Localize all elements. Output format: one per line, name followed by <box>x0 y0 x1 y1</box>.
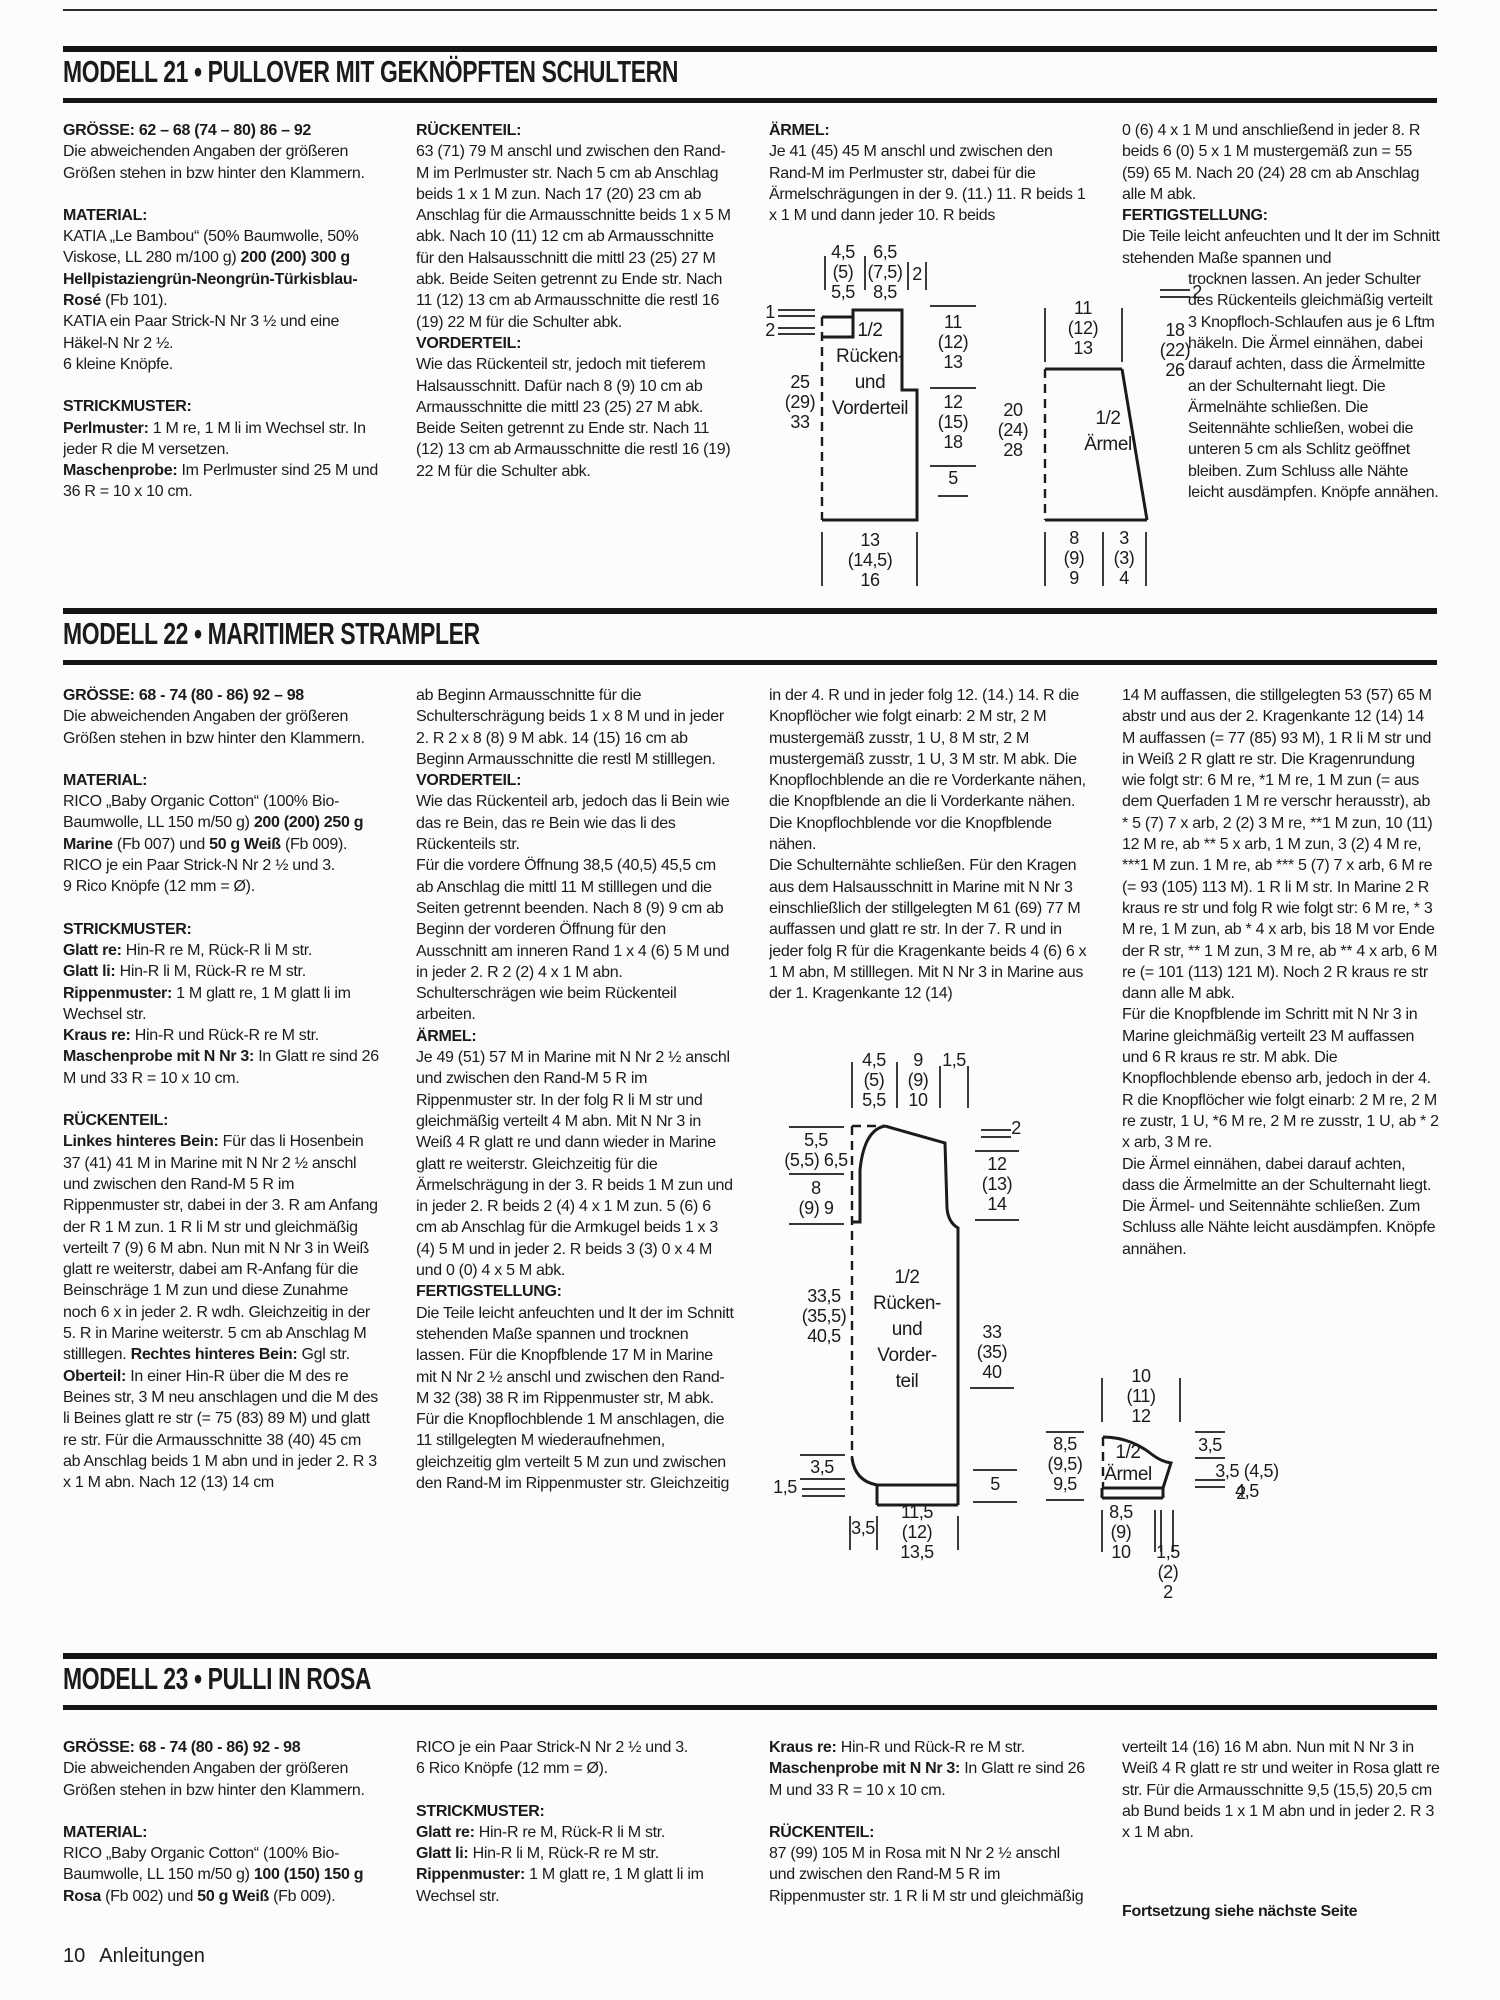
text: Die Teile leicht anfeuchten und lt der i… <box>416 1305 734 1492</box>
text: (Fb 007) und <box>113 836 209 853</box>
bold-text: RÜCKENTEIL: <box>63 1112 168 1129</box>
paragraph: Kraus re: Hin-R und Rück-R re M str. <box>769 1737 1087 1758</box>
text: Hin-R re M, Rück-R li M str. <box>475 1824 665 1841</box>
section-rule <box>63 608 1437 614</box>
paragraph: RÜCKENTEIL: <box>416 120 734 141</box>
bold-text: 50 g Weiß <box>209 836 281 853</box>
bold-text: FERTIGSTELLUNG: <box>416 1283 562 1300</box>
paragraph: Je 41 (45) 45 M anschl und zwischen den … <box>769 141 1087 226</box>
diagram-label: 20 (24) 28 <box>998 400 1028 460</box>
paragraph: MATERIAL: <box>63 205 381 226</box>
paragraph: RÜCKENTEIL: <box>769 1822 1087 1843</box>
paragraph: verteilt 14 (16) 16 M abn. Nun mit N Nr … <box>1122 1737 1440 1843</box>
diagram-label: 4,5 (5) 5,5 <box>862 1050 886 1110</box>
paragraph: Die abweichenden Angaben der größeren Gr… <box>63 706 381 749</box>
text: Hin-R und Rück-R re M str. <box>837 1739 1025 1756</box>
text: Die abweichenden Angaben der größeren Gr… <box>63 1760 365 1798</box>
paragraph: STRICKMUSTER: <box>416 1801 734 1822</box>
diagram-label: 11 (12) 13 <box>1068 298 1098 358</box>
text: KATIA ein Paar Strick-N Nr 3 ½ und eine … <box>63 313 339 351</box>
bold-text: STRICKMUSTER: <box>63 398 192 415</box>
text: Für die vordere Öffnung 38,5 (40,5) 45,5… <box>416 857 729 1023</box>
paragraph: 9 Rico Knöpfe (12 mm = Ø). <box>63 876 381 897</box>
paragraph: GRÖSSE: 68 - 74 (80 - 86) 92 – 98 <box>63 685 381 706</box>
column-m22-1: GRÖSSE: 68 - 74 (80 - 86) 92 – 98Die abw… <box>63 685 381 1647</box>
text: (Fb 002) und <box>101 1888 197 1905</box>
diagram-label: 25 (29) 33 <box>785 372 815 432</box>
bold-text: Maschenprobe: <box>63 462 177 479</box>
bold-text: Oberteil: <box>63 1368 126 1385</box>
paragraph: 6 kleine Knöpfe. <box>63 354 381 375</box>
bold-text: Maschenprobe mit N Nr 3: <box>769 1760 960 1777</box>
paragraph: FERTIGSTELLUNG: <box>1122 205 1440 226</box>
bold-text: GRÖSSE: 62 – 68 (74 – 80) 86 – 92 <box>63 122 311 139</box>
diagram-label: 2 <box>1011 1118 1021 1138</box>
bold-text: Kraus re: <box>63 1027 131 1044</box>
bold-text: RÜCKENTEIL: <box>416 122 521 139</box>
paragraph: STRICKMUSTER: <box>63 396 381 417</box>
page-footer: 10Anleitungen <box>63 1945 205 1968</box>
text: ab Beginn Armausschnitte für die Schulte… <box>416 687 724 768</box>
diagram-label: 1,5 <box>773 1477 797 1497</box>
diagram-label: 33,5 (35,5) 40,5 <box>802 1286 847 1346</box>
paragraph: 87 (99) 105 M in Rosa mit N Nr 2 ½ ansch… <box>769 1843 1087 1907</box>
schematic-diagram-modell21: 4,5 (5) 5,56,5 (7,5) 8,521225 (29) 331/2… <box>760 240 1220 610</box>
paragraph: MATERIAL: <box>63 1822 381 1843</box>
bold-text: 50 g Weiß <box>197 1888 269 1905</box>
paragraph: Rippenmuster: 1 M glatt re, 1 M glatt li… <box>416 1864 734 1907</box>
section-rule <box>63 1705 1437 1710</box>
paragraph: GRÖSSE: 68 - 74 (80 - 86) 92 - 98 <box>63 1737 381 1758</box>
paragraph: ÄRMEL: <box>769 120 1087 141</box>
text: Je 49 (51) 57 M in Marine mit N Nr 2 ½ a… <box>416 1049 733 1279</box>
paragraph: Glatt re: Hin-R re M, Rück-R li M str. <box>416 1822 734 1843</box>
bold-text: Maschenprobe mit N Nr 3: <box>63 1048 254 1065</box>
diagram-label: 3,5 <box>851 1518 875 1538</box>
paragraph: RICO je ein Paar Strick-N Nr 2 ½ und 3. <box>63 855 381 876</box>
diagram-label: 3,5 <box>1198 1435 1222 1455</box>
paragraph: FERTIGSTELLUNG: <box>416 1281 734 1302</box>
text: In einer Hin-R über die M des re Beines … <box>63 1368 378 1491</box>
diagram-label: 18 (22) 26 <box>1160 320 1190 380</box>
paragraph: Oberteil: In einer Hin-R über die M des … <box>63 1366 381 1494</box>
bold-text: ÄRMEL: <box>416 1028 476 1045</box>
paragraph: Die Schulternähte schließen. Für den Kra… <box>769 855 1087 1004</box>
paragraph: trocknen lassen. An jeder Schulter des R… <box>1188 269 1440 503</box>
paragraph: Wie das Rückenteil str, jedoch mit tiefe… <box>416 354 734 482</box>
text: verteilt 14 (16) 16 M abn. Nun mit N Nr … <box>1122 1739 1440 1841</box>
paragraph: Maschenprobe: Im Perlmuster sind 25 M un… <box>63 460 381 503</box>
paragraph: Die Teile leicht anfeuchten und lt der i… <box>416 1303 734 1495</box>
text: (Fb 009). <box>281 836 347 853</box>
paragraph: RICO je ein Paar Strick-N Nr 2 ½ und 3. <box>416 1737 734 1758</box>
column-m21-1: GRÖSSE: 62 – 68 (74 – 80) 86 – 92Die abw… <box>63 120 381 602</box>
text: (Fb 009). <box>269 1888 335 1905</box>
bold-text: Linkes hinteres Bein: <box>63 1133 219 1150</box>
schematic-diagram-modell22: 4,5 (5) 5,59 (9) 101,5212 (13) 1433 (35)… <box>769 1050 1329 1620</box>
bold-text: RÜCKENTEIL: <box>769 1824 874 1841</box>
text: 0 (6) 4 x 1 M und anschließend in jeder … <box>1122 122 1420 203</box>
section-title-modell22: MODELL 22 • MARITIMER STRAMPLER <box>63 616 480 652</box>
bold-text: Rippenmuster: <box>63 985 172 1002</box>
paragraph: 0 (6) 4 x 1 M und anschließend in jeder … <box>1122 120 1440 205</box>
text: Ggl str. <box>297 1346 349 1363</box>
column-m23-1: GRÖSSE: 68 - 74 (80 - 86) 92 - 98Die abw… <box>63 1737 381 1935</box>
section-title-modell21: MODELL 21 • PULLOVER MIT GEKNÖPFTEN SCHU… <box>63 54 678 90</box>
diagram-label: 3,5 (4,5) 4,5 <box>1206 1461 1288 1501</box>
paragraph: Glatt re: Hin-R re M, Rück-R li M str. <box>63 940 381 961</box>
paragraph: ÄRMEL: <box>416 1026 734 1047</box>
diagram-label: 3,5 <box>810 1457 834 1477</box>
bold-text: Glatt re: <box>63 942 122 959</box>
paragraph: Die abweichenden Angaben der größeren Gr… <box>63 1758 381 1801</box>
diagram-label: 8,5 (9,5) 9,5 <box>1047 1434 1082 1494</box>
column-m22-3: in der 4. R und in jeder folg 12. (14.) … <box>769 685 1087 1045</box>
diagram-label: 8 (9) 9 <box>1064 528 1085 588</box>
section-rule <box>63 1653 1437 1659</box>
text: Hin-R re M, Rück-R li M str. <box>122 942 312 959</box>
bold-text: VORDERTEIL: <box>416 335 521 352</box>
bold-text: Glatt li: <box>63 963 115 980</box>
bold-text: VORDERTEIL: <box>416 772 521 789</box>
bold-text: STRICKMUSTER: <box>63 921 192 938</box>
text: Wie das Rückenteil arb, jedoch das li Be… <box>416 793 729 853</box>
text: in der 4. R und in jeder folg 12. (14.) … <box>769 687 1086 853</box>
text: Wie das Rückenteil str, jedoch mit tiefe… <box>416 356 730 479</box>
text: Die Schulternähte schließen. Für den Kra… <box>769 857 1086 1002</box>
paragraph: Je 49 (51) 57 M in Marine mit N Nr 2 ½ a… <box>416 1047 734 1281</box>
paragraph: GRÖSSE: 62 – 68 (74 – 80) 86 – 92 <box>63 120 381 141</box>
diagram-label: 2 <box>765 320 775 340</box>
diagram-label: 12 (15) 18 <box>938 392 968 452</box>
diagram-label: 1/2 Ärmel <box>1084 406 1132 458</box>
paragraph: Glatt li: Hin-R li M, Rück-R re M str. <box>416 1843 734 1864</box>
paragraph: KATIA ein Paar Strick-N Nr 3 ½ und eine … <box>63 311 381 354</box>
column-m22-2: ab Beginn Armausschnitte für die Schulte… <box>416 685 734 1647</box>
diagram-label: 1/2 Rücken- und Vorder- teil <box>873 1265 941 1395</box>
bold-text: ÄRMEL: <box>769 122 829 139</box>
paragraph: VORDERTEIL: <box>416 770 734 791</box>
paragraph: Wie das Rückenteil arb, jedoch das li Be… <box>416 791 734 855</box>
text: Hin-R li M, Rück-R re M str. <box>115 963 305 980</box>
bold-text: FERTIGSTELLUNG: <box>1122 207 1268 224</box>
diagram-label: 2 <box>1236 1483 1246 1503</box>
paragraph: Maschenprobe mit N Nr 3: In Glatt re sin… <box>63 1046 381 1089</box>
diagram-label: 6,5 (7,5) 8,5 <box>867 242 902 302</box>
paragraph: 6 Rico Knöpfe (12 mm = Ø). <box>416 1758 734 1779</box>
text: RICO je ein Paar Strick-N Nr 2 ½ und 3. <box>416 1739 688 1756</box>
text: 14 M auffassen, die stillgelegten 53 (57… <box>1122 687 1437 1002</box>
bold-text: Perlmuster: <box>63 420 149 437</box>
bold-text: Rippenmuster: <box>416 1866 525 1883</box>
text: (Fb 101). <box>101 292 167 309</box>
paragraph: RÜCKENTEIL: <box>63 1110 381 1131</box>
paragraph: in der 4. R und in jeder folg 12. (14.) … <box>769 685 1087 855</box>
column-m23-3: Kraus re: Hin-R und Rück-R re M str.Masc… <box>769 1737 1087 1935</box>
diagram-label: 2 <box>912 264 922 284</box>
schematic-outline <box>760 240 1220 610</box>
bold-text: Fortsetzung siehe nächste Seite <box>1122 1903 1357 1920</box>
diagram-label: 13 (14,5) 16 <box>848 530 893 590</box>
page-top-rule <box>63 9 1437 11</box>
paragraph: MATERIAL: <box>63 770 381 791</box>
magazine-page: MODELL 21 • PULLOVER MIT GEKNÖPFTEN SCHU… <box>0 0 1500 2000</box>
diagram-label: 10 (11) 12 <box>1126 1366 1155 1426</box>
text: 6 kleine Knöpfe. <box>63 356 173 373</box>
column-m21-2: RÜCKENTEIL:63 (71) 79 M anschl und zwisc… <box>416 120 734 602</box>
section-rule <box>63 98 1437 103</box>
bold-text: MATERIAL: <box>63 1824 147 1841</box>
text: Je 41 (45) 45 M anschl und zwischen den … <box>769 143 1085 224</box>
paragraph: Maschenprobe mit N Nr 3: In Glatt re sin… <box>769 1758 1087 1801</box>
diagram-label: 5,5 (5,5) 6,5 <box>784 1130 847 1170</box>
bold-text: MATERIAL: <box>63 772 147 789</box>
text: 6 Rico Knöpfe (12 mm = Ø). <box>416 1760 608 1777</box>
diagram-label: 4,5 (5) 5,5 <box>831 242 855 302</box>
bold-text: STRICKMUSTER: <box>416 1803 545 1820</box>
diagram-label: 12 (13) 14 <box>982 1154 1012 1214</box>
paragraph: Für die vordere Öffnung 38,5 (40,5) 45,5… <box>416 855 734 1025</box>
diagram-label: 5 <box>948 468 958 488</box>
bold-text: Glatt re: <box>416 1824 475 1841</box>
paragraph: KATIA „Le Bambou“ (50% Baumwolle, 50% Vi… <box>63 226 381 311</box>
paragraph: Fortsetzung siehe nächste Seite <box>1122 1901 1440 1922</box>
section-rule <box>63 660 1437 665</box>
text: 63 (71) 79 M anschl und zwischen den Ran… <box>416 143 731 330</box>
footer-label: Anleitungen <box>99 1945 205 1967</box>
text: trocknen lassen. An jeder Schulter des R… <box>1188 271 1438 501</box>
bold-text: GRÖSSE: 68 - 74 (80 - 86) 92 - 98 <box>63 1739 300 1756</box>
paragraph: Die abweichenden Angaben der größeren Gr… <box>63 141 381 184</box>
section-title-modell23: MODELL 23 • PULLI IN ROSA <box>63 1661 371 1697</box>
diagram-label: 3 (3) 4 <box>1114 528 1135 588</box>
bold-text: Kraus re: <box>769 1739 837 1756</box>
footer-page-number: 10 <box>63 1945 85 1967</box>
diagram-label: 33 (35) 40 <box>977 1322 1007 1382</box>
diagram-label: 1,5 (2) 2 <box>1156 1542 1180 1602</box>
text: RICO je ein Paar Strick-N Nr 2 ½ und 3. <box>63 857 335 874</box>
diagram-label: 11 (12) 13 <box>938 312 968 372</box>
diagram-label: 1 <box>765 302 775 322</box>
diagram-label: 1,5 <box>942 1050 966 1070</box>
bold-text: GRÖSSE: 68 - 74 (80 - 86) 92 – 98 <box>63 687 304 704</box>
bold-text: Glatt li: <box>416 1845 468 1862</box>
diagram-label: 11,5 (12) 13,5 <box>900 1502 933 1562</box>
paragraph: Linkes hinteres Bein: Für das li Hosenbe… <box>63 1131 381 1365</box>
paragraph: VORDERTEIL: <box>416 333 734 354</box>
paragraph: Glatt li: Hin-R li M, Rück-R re M str. <box>63 961 381 982</box>
paragraph: RICO „Baby Organic Cotton“ (100% Bio-Bau… <box>63 1843 381 1907</box>
diagram-label: 8 (9) 9 <box>798 1178 833 1218</box>
paragraph: STRICKMUSTER: <box>63 919 381 940</box>
text: Hin-R li M, Rück-R re M str. <box>468 1845 658 1862</box>
text: 9 Rico Knöpfe (12 mm = Ø). <box>63 878 255 895</box>
column-m23-2: RICO je ein Paar Strick-N Nr 2 ½ und 3.6… <box>416 1737 734 1935</box>
diagram-label: 1/2 Ärmel <box>1104 1442 1152 1486</box>
text: Hin-R und Rück-R re M str. <box>131 1027 319 1044</box>
paragraph: 14 M auffassen, die stillgelegten 53 (57… <box>1122 685 1440 1004</box>
text: Die abweichenden Angaben der größeren Gr… <box>63 708 365 746</box>
paragraph: Perlmuster: 1 M re, 1 M li im Wechsel st… <box>63 418 381 461</box>
paragraph: Rippenmuster: 1 M glatt re, 1 M glatt li… <box>63 983 381 1026</box>
bold-text: Rechtes hinteres Bein: <box>131 1346 298 1363</box>
text: 87 (99) 105 M in Rosa mit N Nr 2 ½ ansch… <box>769 1845 1083 1905</box>
column-m23-4: verteilt 14 (16) 16 M abn. Nun mit N Nr … <box>1122 1737 1440 1935</box>
section-rule <box>63 46 1437 52</box>
text: Die abweichenden Angaben der größeren Gr… <box>63 143 365 181</box>
text: Für das li Hosenbein 37 (41) 41 M in Mar… <box>63 1133 378 1363</box>
diagram-label: 5 <box>990 1474 1000 1494</box>
diagram-label: 2 <box>1192 282 1202 302</box>
paragraph: Kraus re: Hin-R und Rück-R re M str. <box>63 1025 381 1046</box>
bold-text: MATERIAL: <box>63 207 147 224</box>
paragraph: RICO „Baby Organic Cotton“ (100% Bio-Bau… <box>63 791 381 855</box>
paragraph: ab Beginn Armausschnitte für die Schulte… <box>416 685 734 770</box>
diagram-label: 8,5 (9) 10 <box>1109 1502 1133 1562</box>
diagram-label: 1/2 Rücken- und Vorderteil <box>832 318 908 422</box>
diagram-label: 9 (9) 10 <box>908 1050 929 1110</box>
paragraph: 63 (71) 79 M anschl und zwischen den Ran… <box>416 141 734 333</box>
